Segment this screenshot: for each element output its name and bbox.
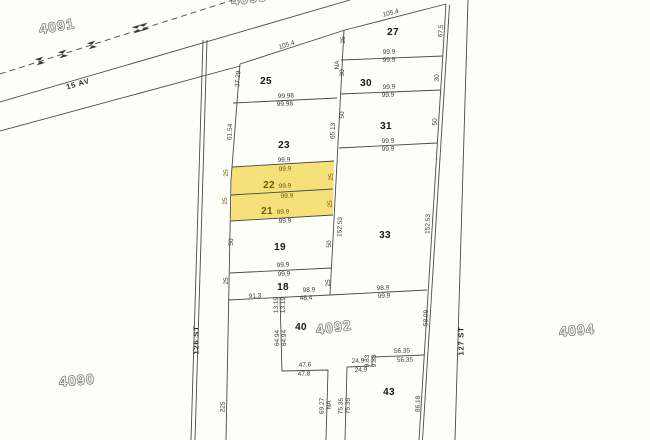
dimension-label: 25 [224,169,231,176]
dimension-label: 75.35 [346,398,353,414]
block-number-4091: 4091 [38,16,76,36]
dimension-label: 98.9 [303,287,316,294]
dimension-label: 99.9 [279,218,292,225]
dimension-label: 25 [223,197,230,204]
dimension-label: 30 [340,69,347,76]
dimension-label: 24.9 [352,359,365,366]
lot-number-40: 40 [295,323,307,333]
dimension-label: 65.13 [330,123,337,140]
dimension-label: 105.4 [382,9,399,19]
dimension-label: 56.35 [394,348,410,355]
dimension-label: 98.9 [377,285,390,292]
street-label-127-st: 127 ST [457,327,465,356]
dimension-label: 50 [327,240,334,247]
dimension-label: 225 [221,401,228,412]
lot-number-21: 21 [261,207,273,217]
dimension-label: 152.53 [337,217,344,237]
dimension-label: 25 [326,279,333,286]
dimension-label: 48.4 [300,295,313,302]
dimension-label: 99.9 [281,193,294,200]
dimension-label: 47.8 [298,372,311,379]
dimension-label: 30 [435,74,442,81]
dimension-label: 99.9 [278,271,291,278]
dimension-label: 99.9 [382,147,395,154]
dimension-label: 50 [433,118,440,125]
street-label-126-st: 126 ST [192,326,200,355]
dimension-label: 99.9 [278,157,291,164]
dimension-label: 9.83 [372,355,379,368]
dimension-label: 25 [329,173,336,180]
dimension-label: 25 [328,200,335,207]
dimension-label: 47.6 [299,363,312,370]
lot-number-27: 27 [387,28,399,38]
dimension-label: NA [335,60,342,69]
dimension-label: 99.9 [383,58,396,65]
block-number-4094: 4094 [558,321,595,338]
dimension-label: 67.5 [438,24,445,37]
dimension-label: 58.09 [423,310,430,326]
dimension-label: 99.9 [277,262,290,269]
lot-number-43: 43 [383,388,395,398]
dimension-label: 99.9 [383,50,396,57]
dimension-label: 50 [229,238,236,245]
dimension-label: 86.18 [415,396,422,412]
parcel-map: 4091409340904092409415 AV126 ST127 ST252… [0,0,650,440]
dimension-label: 13.19 [281,297,288,313]
dimension-label: 99.9 [378,293,391,300]
lot-number-23: 23 [278,141,290,151]
dimension-label: 25 [341,36,348,43]
dimension-label: 99.9 [383,85,396,92]
block-number-4092: 4092 [315,318,353,337]
dimension-label: 91.3 [249,293,262,300]
dimension-label: 50 [340,111,347,118]
street-label-15-av: 15 AV [65,77,90,91]
lot-number-25: 25 [260,77,272,87]
dimension-label: 64.94 [282,330,289,346]
dimension-label: 99.98 [277,101,294,108]
dimension-label: 99.9 [382,93,395,100]
dimension-label: 37.29 [235,71,243,88]
lot-number-33: 33 [379,231,391,241]
dimension-label: 105.4 [278,40,295,51]
lot-number-22: 22 [263,181,275,191]
dimension-label: 56.35 [397,357,413,364]
dimension-label: NA [327,400,334,409]
dimension-label: 99.9 [382,139,395,146]
lot-number-18: 18 [277,283,289,293]
dimension-label: 152.53 [425,214,432,234]
block-number-4093: 4093 [230,0,268,7]
dimension-label: 25 [224,277,231,284]
lot-number-31: 31 [380,122,392,132]
dimension-label: 24.9 [355,368,368,375]
lot-number-30: 30 [360,79,372,89]
dimension-label: 99.9 [279,183,292,190]
dimension-label: 99.9 [279,166,292,173]
dimension-label: 99.9 [277,209,290,216]
block-number-4090: 4090 [58,371,95,388]
label-layer: 4091409340904092409415 AV126 ST127 ST252… [0,0,650,440]
lot-number-19: 19 [274,243,286,253]
dimension-label: 61.54 [227,124,234,141]
